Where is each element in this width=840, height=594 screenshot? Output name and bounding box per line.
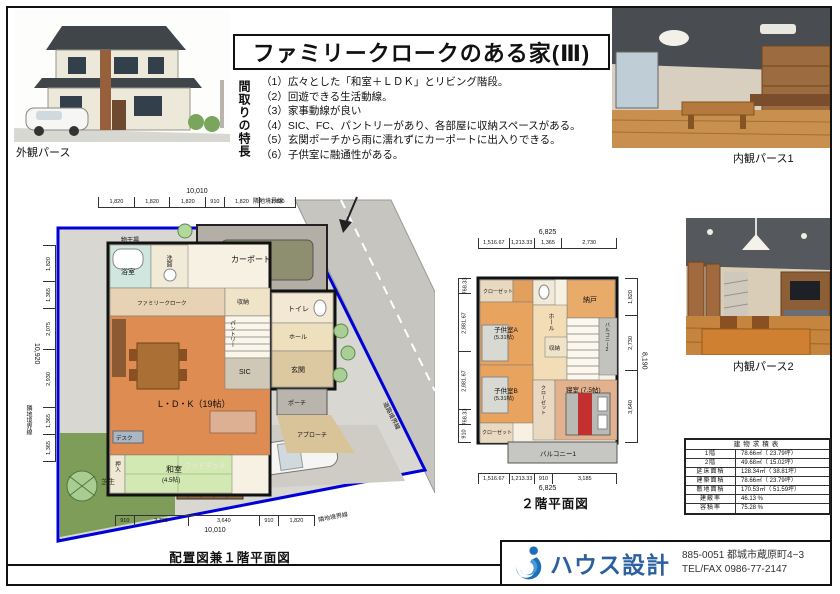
dim-seg: 2,881.67 — [462, 370, 468, 391]
interior-perspective1-image — [612, 8, 830, 148]
exterior-render — [14, 10, 230, 142]
room-label-toilet: トイレ — [288, 304, 309, 314]
features-list: （1）広々とした「和室＋ＬＤＫ」とリビング階段。 （2）回遊できる生活動線。 （… — [261, 77, 609, 161]
room-label-washitsu-size: (4.5帖) — [162, 475, 180, 484]
dim-seg: 2,730 — [134, 516, 188, 526]
plan1-drawing — [25, 183, 435, 568]
row-label: 敷地面積 — [686, 486, 736, 494]
row-value: 78.66㎡（ 23.79坪） — [736, 450, 829, 458]
dim-total: 10,920 — [33, 343, 40, 364]
dim-seg: 2,881.67 — [462, 312, 468, 333]
room-label-sic: SIC — [239, 369, 251, 376]
dim-seg: 1,213.33 — [509, 474, 534, 484]
dim-seg: 1,365 — [46, 441, 52, 455]
dim-seg: 2,930 — [46, 372, 52, 386]
features-heading: 間取りの特長 — [237, 80, 253, 176]
row-value: 46.13 % — [736, 495, 829, 503]
room-label-balcony1: バルコニー1 — [540, 448, 576, 458]
dim-seg: 1,820 — [278, 516, 315, 526]
dim-seg: 1,516.67 — [478, 474, 509, 484]
row-value: 128.34㎡（ 38.81坪） — [736, 468, 829, 476]
interior-perspective1-label: 内観パース1 — [733, 150, 794, 166]
table-row: 建築面積 78.66㎡（ 23.79坪） — [686, 477, 829, 486]
room-label-washitsu: 和室 — [166, 464, 182, 475]
dim-seg: 2,075 — [46, 322, 52, 336]
table-row: 敷地面積 170.53㎡（ 51.59坪） — [686, 486, 829, 495]
dim-seg: 2,730 — [561, 238, 617, 248]
building-area-table: 建物求積表 1階 78.66㎡（ 23.79坪） 2階 49.68㎡（ 15.0… — [684, 438, 831, 515]
dim-seg: 910 — [462, 429, 468, 438]
company-logo-icon — [508, 544, 546, 582]
room-label-hall2: ホール — [546, 313, 555, 331]
dim-total: 8,190 — [641, 352, 648, 370]
feature-item: （6）子供室に融通性がある。 — [261, 150, 609, 161]
dim-seg: 1,820 — [169, 197, 205, 207]
interior-perspective2-image — [686, 218, 830, 355]
exterior-perspective-image — [14, 10, 230, 142]
site-label-porch: ポーチ — [288, 398, 306, 407]
feature-item: （5）玄関ポーチから雨に濡れずにカーポートに出入りできる。 — [261, 135, 609, 146]
presentation-sheet: 外観パース ファミリークロークのある家(Ⅲ) 間取りの特長 （1）広々とした「和… — [0, 0, 840, 594]
table-row: 建蔽率 46.13 % — [686, 495, 829, 504]
dim-seg: 3,640 — [628, 400, 634, 414]
room-label-closet-v: クローゼット — [540, 385, 547, 415]
room-label-desk: デスク — [116, 434, 133, 442]
room-label-monohoshi: 物干場 — [121, 235, 139, 244]
row-label: 1階 — [686, 450, 736, 458]
dim-seg: 1,820 — [134, 197, 170, 207]
site-label-deck: ウッドデッキ — [184, 461, 226, 471]
site-label-approach: アプローチ — [297, 430, 327, 439]
exterior-perspective-label: 外観パース — [16, 144, 70, 160]
boundary-label-top: 隣地境界線 — [253, 196, 283, 205]
row-value: 78.66㎡（ 23.79坪） — [736, 477, 829, 485]
dim-seg: 910 — [205, 197, 223, 207]
company-info: 885-0051 都城市蔵原町4−3 TEL/FAX 0986-77-2147 — [682, 549, 804, 577]
dim-total: 6,825 — [478, 228, 617, 238]
room-label-closet1: クローゼット — [483, 288, 513, 295]
page-title: ファミリークロークのある家(Ⅲ) — [233, 34, 610, 70]
dim-seg: 1,820 — [98, 197, 134, 207]
plan2-dims-top: 6,825 1,516.67 1,213.33 1,365 2,730 — [478, 228, 617, 249]
company-tel: TEL/FAX 0986-77-2147 — [682, 563, 804, 577]
room-label-bedroom: 寝室 (7.5帖) — [566, 384, 601, 394]
dim-seg: 1,365 — [534, 238, 562, 248]
dim-seg: 910 — [534, 474, 553, 484]
plan2-dims-left: 768.33 2,881.67 2,881.67 768.33 910 — [458, 278, 471, 443]
plan2-caption: ２階平面図 — [460, 493, 650, 512]
room-label-genkan: 玄関 — [291, 365, 305, 375]
boundary-label-left: 隣地境界線 — [24, 405, 33, 435]
room-label-pantry: パントリー — [228, 320, 236, 348]
room-label-cloak: ファミリークローク — [137, 299, 187, 307]
area-table-title: 建物求積表 — [686, 440, 829, 450]
plan2-dims-bottom: 1,516.67 1,213.33 910 3,185 6,825 — [478, 473, 617, 494]
interior2-render — [686, 218, 830, 355]
plan1-caption: 配置図兼１階平面図 — [130, 547, 330, 566]
room-label-kidsB-size: (5.31帖) — [494, 394, 514, 402]
room-label-closet-bl: クローゼット — [482, 429, 512, 436]
feature-item: （4）SIC、FC、パントリーがあり、各部屋に収納スペースがある。 — [261, 121, 609, 132]
room-label-nando: 納戸 — [583, 295, 597, 305]
room-label-storage: 収納 — [237, 297, 249, 306]
interior-perspective2-label: 内観パース2 — [733, 358, 794, 374]
dim-seg: 1,820 — [628, 290, 634, 304]
dim-seg: 3,640 — [188, 516, 260, 526]
dim-seg: 2,730 — [628, 336, 634, 350]
row-value: 75.28 % — [736, 504, 829, 513]
row-value: 49.68㎡（ 15.02坪） — [736, 459, 829, 467]
room-label-ldk: L・D・K（19帖） — [158, 397, 231, 410]
plan2-dims-right: 1,820 2,730 3,640 8,190 — [625, 278, 650, 443]
row-label: 延床面積 — [686, 468, 736, 476]
dim-seg: 910 — [115, 516, 134, 526]
dim-seg: 3,185 — [552, 474, 617, 484]
row-label: 建築面積 — [686, 477, 736, 485]
table-row: 延床面積 128.34㎡（ 38.81坪） — [686, 468, 829, 477]
table-row: 2階 49.68㎡（ 15.02坪） — [686, 459, 829, 468]
table-row: 容積率 75.28 % — [686, 504, 829, 513]
company-address: 885-0051 都城市蔵原町4−3 — [682, 549, 804, 563]
feature-item: （1）広々とした「和室＋ＬＤＫ」とリビング階段。 — [261, 77, 609, 88]
dim-seg: 910 — [259, 516, 278, 526]
row-label: 2階 — [686, 459, 736, 467]
feature-item: （3）家事動線が良い — [261, 106, 609, 117]
room-label-oshiire: 押入 — [113, 461, 121, 472]
room-label-bath: 浴室 — [121, 267, 135, 277]
plan1-dims-left: 10,920 1,820 1,365 2,075 2,930 1,365 1,3… — [33, 245, 56, 462]
room-label-balcony2: バルコニー2 — [604, 322, 611, 353]
room-label-wash: 洗面 — [164, 255, 173, 267]
dim-seg: 768.33 — [462, 278, 468, 295]
room-label-storage2: 収納 — [549, 344, 560, 352]
row-label: 建蔽率 — [686, 495, 736, 503]
interior1-render — [612, 8, 830, 148]
row-value: 170.53㎡（ 51.59坪） — [736, 486, 829, 494]
2f-plan: 6,825 1,516.67 1,213.33 1,365 2,730 768.… — [440, 225, 670, 525]
plan1-dims-bottom: 910 2,730 3,640 910 1,820 10,010 — [115, 515, 315, 536]
site-and-1f-plan: 10,010 1,820 1,820 1,820 910 1,820 1,820… — [25, 183, 435, 568]
dim-seg: 1,365 — [46, 414, 52, 428]
row-label: 容積率 — [686, 504, 736, 513]
company-footer: ハウス設計 885-0051 都城市蔵原町4−3 TEL/FAX 0986-77… — [500, 540, 832, 586]
company-name: ハウス設計 — [550, 546, 670, 580]
dim-seg: 1,820 — [46, 257, 52, 271]
dim-seg: 1,516.67 — [478, 238, 509, 248]
dim-total: 10,010 — [115, 526, 315, 536]
site-label-carport: カーポート — [231, 254, 271, 265]
dim-seg: 1,365 — [46, 288, 52, 302]
table-row: 1階 78.66㎡（ 23.79坪） — [686, 450, 829, 459]
dim-seg: 768.33 — [462, 409, 468, 426]
site-label-lawn: 芝生 — [101, 477, 115, 487]
room-label-kidsA-size: (5.31帖) — [494, 333, 514, 341]
room-label-hall: ホール — [289, 332, 307, 341]
feature-item: （2）回遊できる生活動線。 — [261, 92, 609, 103]
dim-seg: 1,213.33 — [509, 238, 534, 248]
